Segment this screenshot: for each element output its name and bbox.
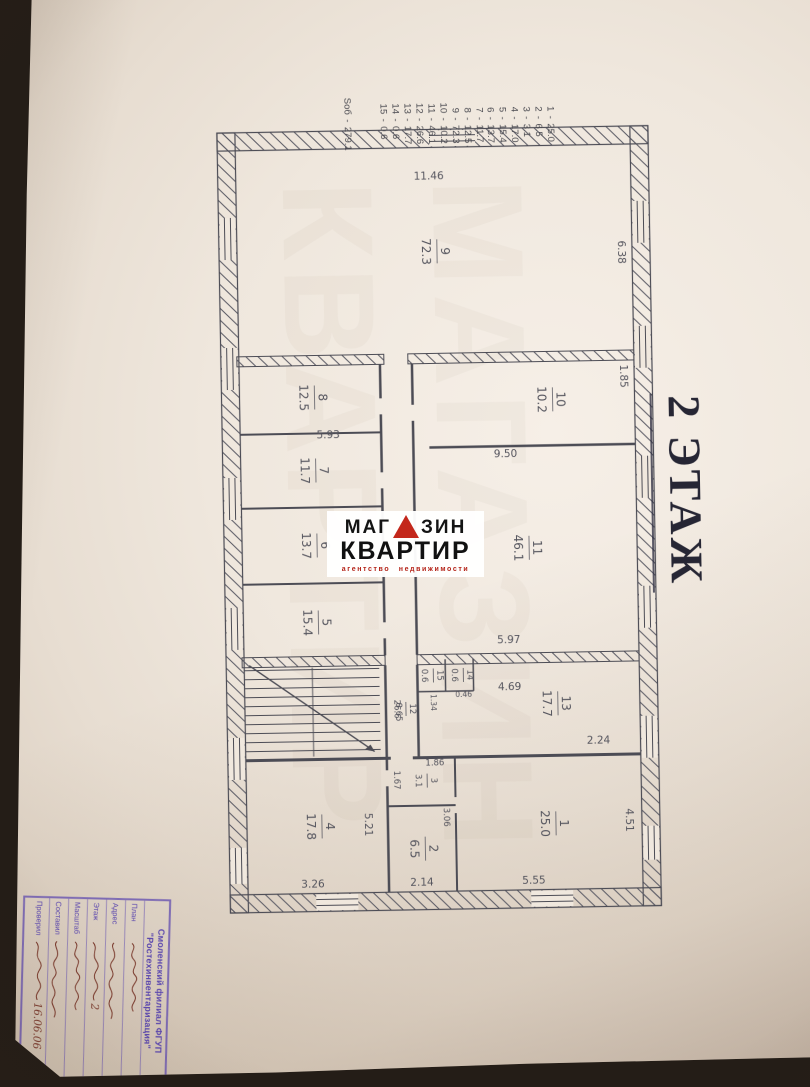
- room-list-entry: 9-72.3: [448, 65, 462, 169]
- dimension-label: 4.69: [498, 681, 522, 693]
- stamp-row-value: 16.06.06: [30, 1002, 43, 1049]
- handwriting-scribble: [68, 940, 85, 1036]
- dimension-label: 1.67: [391, 771, 401, 790]
- room-list-entry: 5-15.4: [495, 64, 509, 168]
- room-label: 417.8: [304, 813, 337, 840]
- dimension-label: 5.55: [522, 875, 546, 887]
- room-label: 1317.7: [540, 690, 573, 717]
- handwriting-scribble: [106, 941, 123, 1037]
- stamp-rows: ПланАдресЭтаж2МасштабСоставилПроверил16.…: [26, 898, 145, 1081]
- room-list-entry: 1-25.0: [543, 63, 557, 167]
- svg-text:17.7: 17.7: [540, 690, 554, 717]
- svg-text:15.4: 15.4: [300, 609, 314, 636]
- room-list-entry: 10-10.2: [436, 65, 450, 169]
- stamp-row-label: Этаж: [92, 902, 102, 936]
- dimension-label: 4.51: [623, 808, 635, 832]
- svg-text:9: 9: [438, 247, 452, 255]
- floor-title: 2 ЭТАЖ: [649, 393, 713, 593]
- watermark-word2: КВАРТИР: [340, 538, 470, 564]
- svg-text:6.5: 6.5: [407, 839, 421, 858]
- room-list-entry: 6-13.7: [483, 64, 497, 168]
- room-label: 26.5: [407, 836, 440, 861]
- photo-of-floor-plan: { "floor_header": "2 ЭТАЖ", "room_list":…: [0, 0, 810, 1080]
- dimension-label: 0.46: [455, 690, 472, 699]
- svg-text:0.6: 0.6: [419, 669, 429, 683]
- dimension-label: 8.65: [393, 703, 403, 722]
- stamp-row-label: Масштаб: [73, 902, 83, 936]
- dimension-label: 2.14: [410, 876, 434, 888]
- svg-text:0.6: 0.6: [449, 668, 459, 682]
- room-label: 33.1: [413, 773, 439, 787]
- room-list-entry: 3-3.1: [519, 64, 533, 168]
- room-list-entry: 14-0.6: [388, 66, 402, 170]
- logo-triangle-icon: [393, 515, 419, 538]
- svg-text:25.0: 25.0: [538, 810, 552, 837]
- svg-text:10.2: 10.2: [534, 386, 548, 413]
- stamp-row-label: Адрес: [111, 903, 121, 937]
- watermark-logo: МАГ ЗИН КВАРТИР агентство недвижимости: [327, 511, 484, 577]
- bti-stamp: Смоленский филиал ФГУП "Ростехинвентариз…: [18, 896, 171, 1084]
- room-label: 711.7: [298, 457, 331, 484]
- room-list-entry: 8-12.5: [459, 65, 473, 169]
- svg-text:8: 8: [315, 393, 329, 401]
- room-list-entry: 15-0.6: [376, 66, 390, 170]
- stamp-row-label: Составил: [54, 901, 64, 935]
- room-label: 1146.1: [511, 534, 544, 561]
- svg-text:13.7: 13.7: [299, 532, 313, 559]
- svg-text:11: 11: [530, 540, 544, 556]
- svg-text:72.3: 72.3: [419, 238, 433, 265]
- room-label: 125.0: [538, 810, 571, 837]
- svg-text:46.1: 46.1: [511, 534, 525, 561]
- svg-text:11.7: 11.7: [298, 457, 312, 484]
- watermark-word1-prefix: МАГ: [345, 518, 391, 537]
- watermark-tagline: агентство недвижимости: [342, 566, 470, 573]
- handwriting-scribble: [31, 939, 47, 999]
- room-list-total: Sоб-279.1: [340, 67, 354, 171]
- svg-text:3.1: 3.1: [413, 774, 423, 788]
- svg-text:7: 7: [317, 466, 331, 474]
- stamp-org-name: Смоленский филиал ФГУП "Ростехинвентариз…: [140, 901, 169, 1082]
- stamp-row-label: План: [130, 903, 140, 937]
- svg-text:1: 1: [557, 819, 571, 827]
- handwriting-scribble: [49, 939, 66, 1035]
- watermark-word1-suffix: ЗИН: [421, 518, 466, 537]
- dimension-label: 2.24: [587, 734, 611, 746]
- room-list-entry: 12-26.6: [412, 66, 426, 170]
- handwriting-scribble: [125, 941, 142, 1037]
- svg-text:2: 2: [426, 845, 440, 853]
- dimension-label: 3.06: [441, 808, 451, 827]
- dimension-label: 5.93: [316, 429, 340, 441]
- stamp-row-value: 2: [88, 1003, 100, 1010]
- svg-text:12: 12: [407, 703, 417, 714]
- room-label: 140.6: [449, 668, 475, 682]
- dimension-label: 9.50: [494, 448, 518, 460]
- room-list-entry: 7-11.7: [471, 65, 485, 169]
- watermark-word1: МАГ ЗИН: [345, 515, 467, 537]
- interior-walls: [237, 350, 643, 895]
- dimension-label: 5.21: [362, 813, 374, 837]
- stamp-row-label: Проверил: [35, 901, 45, 936]
- dimension-label: 1.85: [617, 364, 629, 388]
- dimension-label: 1.86: [425, 758, 444, 768]
- dimension-label: 6.38: [615, 240, 627, 264]
- staircase: [244, 663, 381, 757]
- svg-text:10: 10: [553, 391, 567, 407]
- svg-text:14: 14: [464, 669, 474, 680]
- svg-text:3: 3: [428, 778, 438, 784]
- room-list-entry: 2-6.5: [531, 63, 545, 167]
- svg-text:5: 5: [319, 618, 333, 626]
- svg-text:12.5: 12.5: [296, 384, 310, 411]
- dimension-label: 11.46: [414, 170, 445, 183]
- room-list-entry: 13-17.7: [400, 66, 414, 170]
- room-label: 515.4: [300, 609, 333, 636]
- room-label: 972.3: [419, 238, 452, 265]
- handwriting-scribble: [88, 940, 104, 1000]
- svg-text:13: 13: [559, 695, 573, 711]
- room-list-entry: 4-17.0: [507, 64, 521, 168]
- dimension-label: 1.34: [429, 694, 438, 711]
- dimension-label: 3.26: [301, 878, 325, 890]
- room-label: 812.5: [296, 384, 329, 411]
- room-label: 1010.2: [534, 386, 567, 413]
- svg-text:4: 4: [323, 822, 337, 830]
- room-label: 150.6: [419, 668, 445, 682]
- dimension-label: 5.97: [497, 634, 521, 646]
- svg-text:17.8: 17.8: [304, 813, 318, 840]
- svg-text:15: 15: [434, 670, 444, 681]
- room-area-list: 1-25.02-6.53-3.14-17.05-15.46-13.77-11.7…: [340, 63, 556, 171]
- room-list-entry: 11-46.1: [424, 65, 438, 169]
- photo-edge-artifact: [0, 960, 8, 1072]
